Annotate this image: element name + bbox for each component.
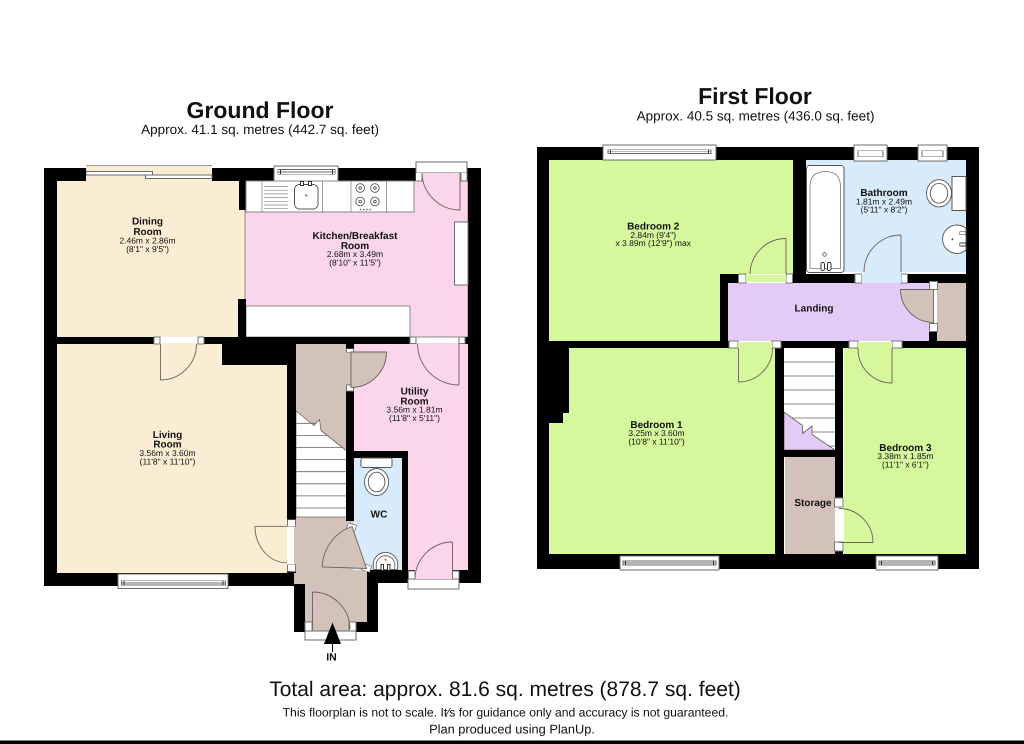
svg-text:(11'8" x 5'11"): (11'8" x 5'11") bbox=[389, 413, 440, 423]
svg-text:IN: IN bbox=[326, 652, 337, 664]
svg-text:(10'8" x 11'10"): (10'8" x 11'10") bbox=[628, 436, 685, 446]
svg-text:Ground Floor: Ground Floor bbox=[187, 97, 334, 123]
svg-text:(11'8" x 11'10"): (11'8" x 11'10") bbox=[140, 456, 196, 466]
svg-text:First Floor: First Floor bbox=[698, 83, 812, 109]
svg-text:WC: WC bbox=[371, 510, 388, 521]
svg-text:(8'10" x 11'5"): (8'10" x 11'5") bbox=[329, 257, 381, 267]
svg-text:Dining: Dining bbox=[132, 217, 163, 228]
svg-text:This floorplan is not to scale: This floorplan is not to scale. It⁄s for… bbox=[283, 706, 729, 720]
svg-text:Plan produced using PlanUp.: Plan produced using PlanUp. bbox=[429, 722, 595, 737]
svg-text:Landing: Landing bbox=[795, 304, 834, 315]
svg-text:(11'1" x 6'1"): (11'1" x 6'1") bbox=[882, 459, 929, 469]
svg-text:(5'11" x 8'2"): (5'11" x 8'2") bbox=[861, 205, 908, 215]
svg-text:Approx. 41.1 sq. metres (442.7: Approx. 41.1 sq. metres (442.7 sq. feet) bbox=[141, 122, 379, 137]
svg-text:Storage: Storage bbox=[794, 498, 832, 509]
svg-text:x 3.89m (12'9") max: x 3.89m (12'9") max bbox=[615, 238, 691, 248]
svg-text:(8'1" x 9'5"): (8'1" x 9'5") bbox=[126, 244, 169, 254]
svg-text:Approx. 40.5 sq. metres (436.0: Approx. 40.5 sq. metres (436.0 sq. feet) bbox=[637, 109, 875, 124]
svg-text:Total area: approx. 81.6 sq. m: Total area: approx. 81.6 sq. metres (878… bbox=[269, 678, 741, 701]
